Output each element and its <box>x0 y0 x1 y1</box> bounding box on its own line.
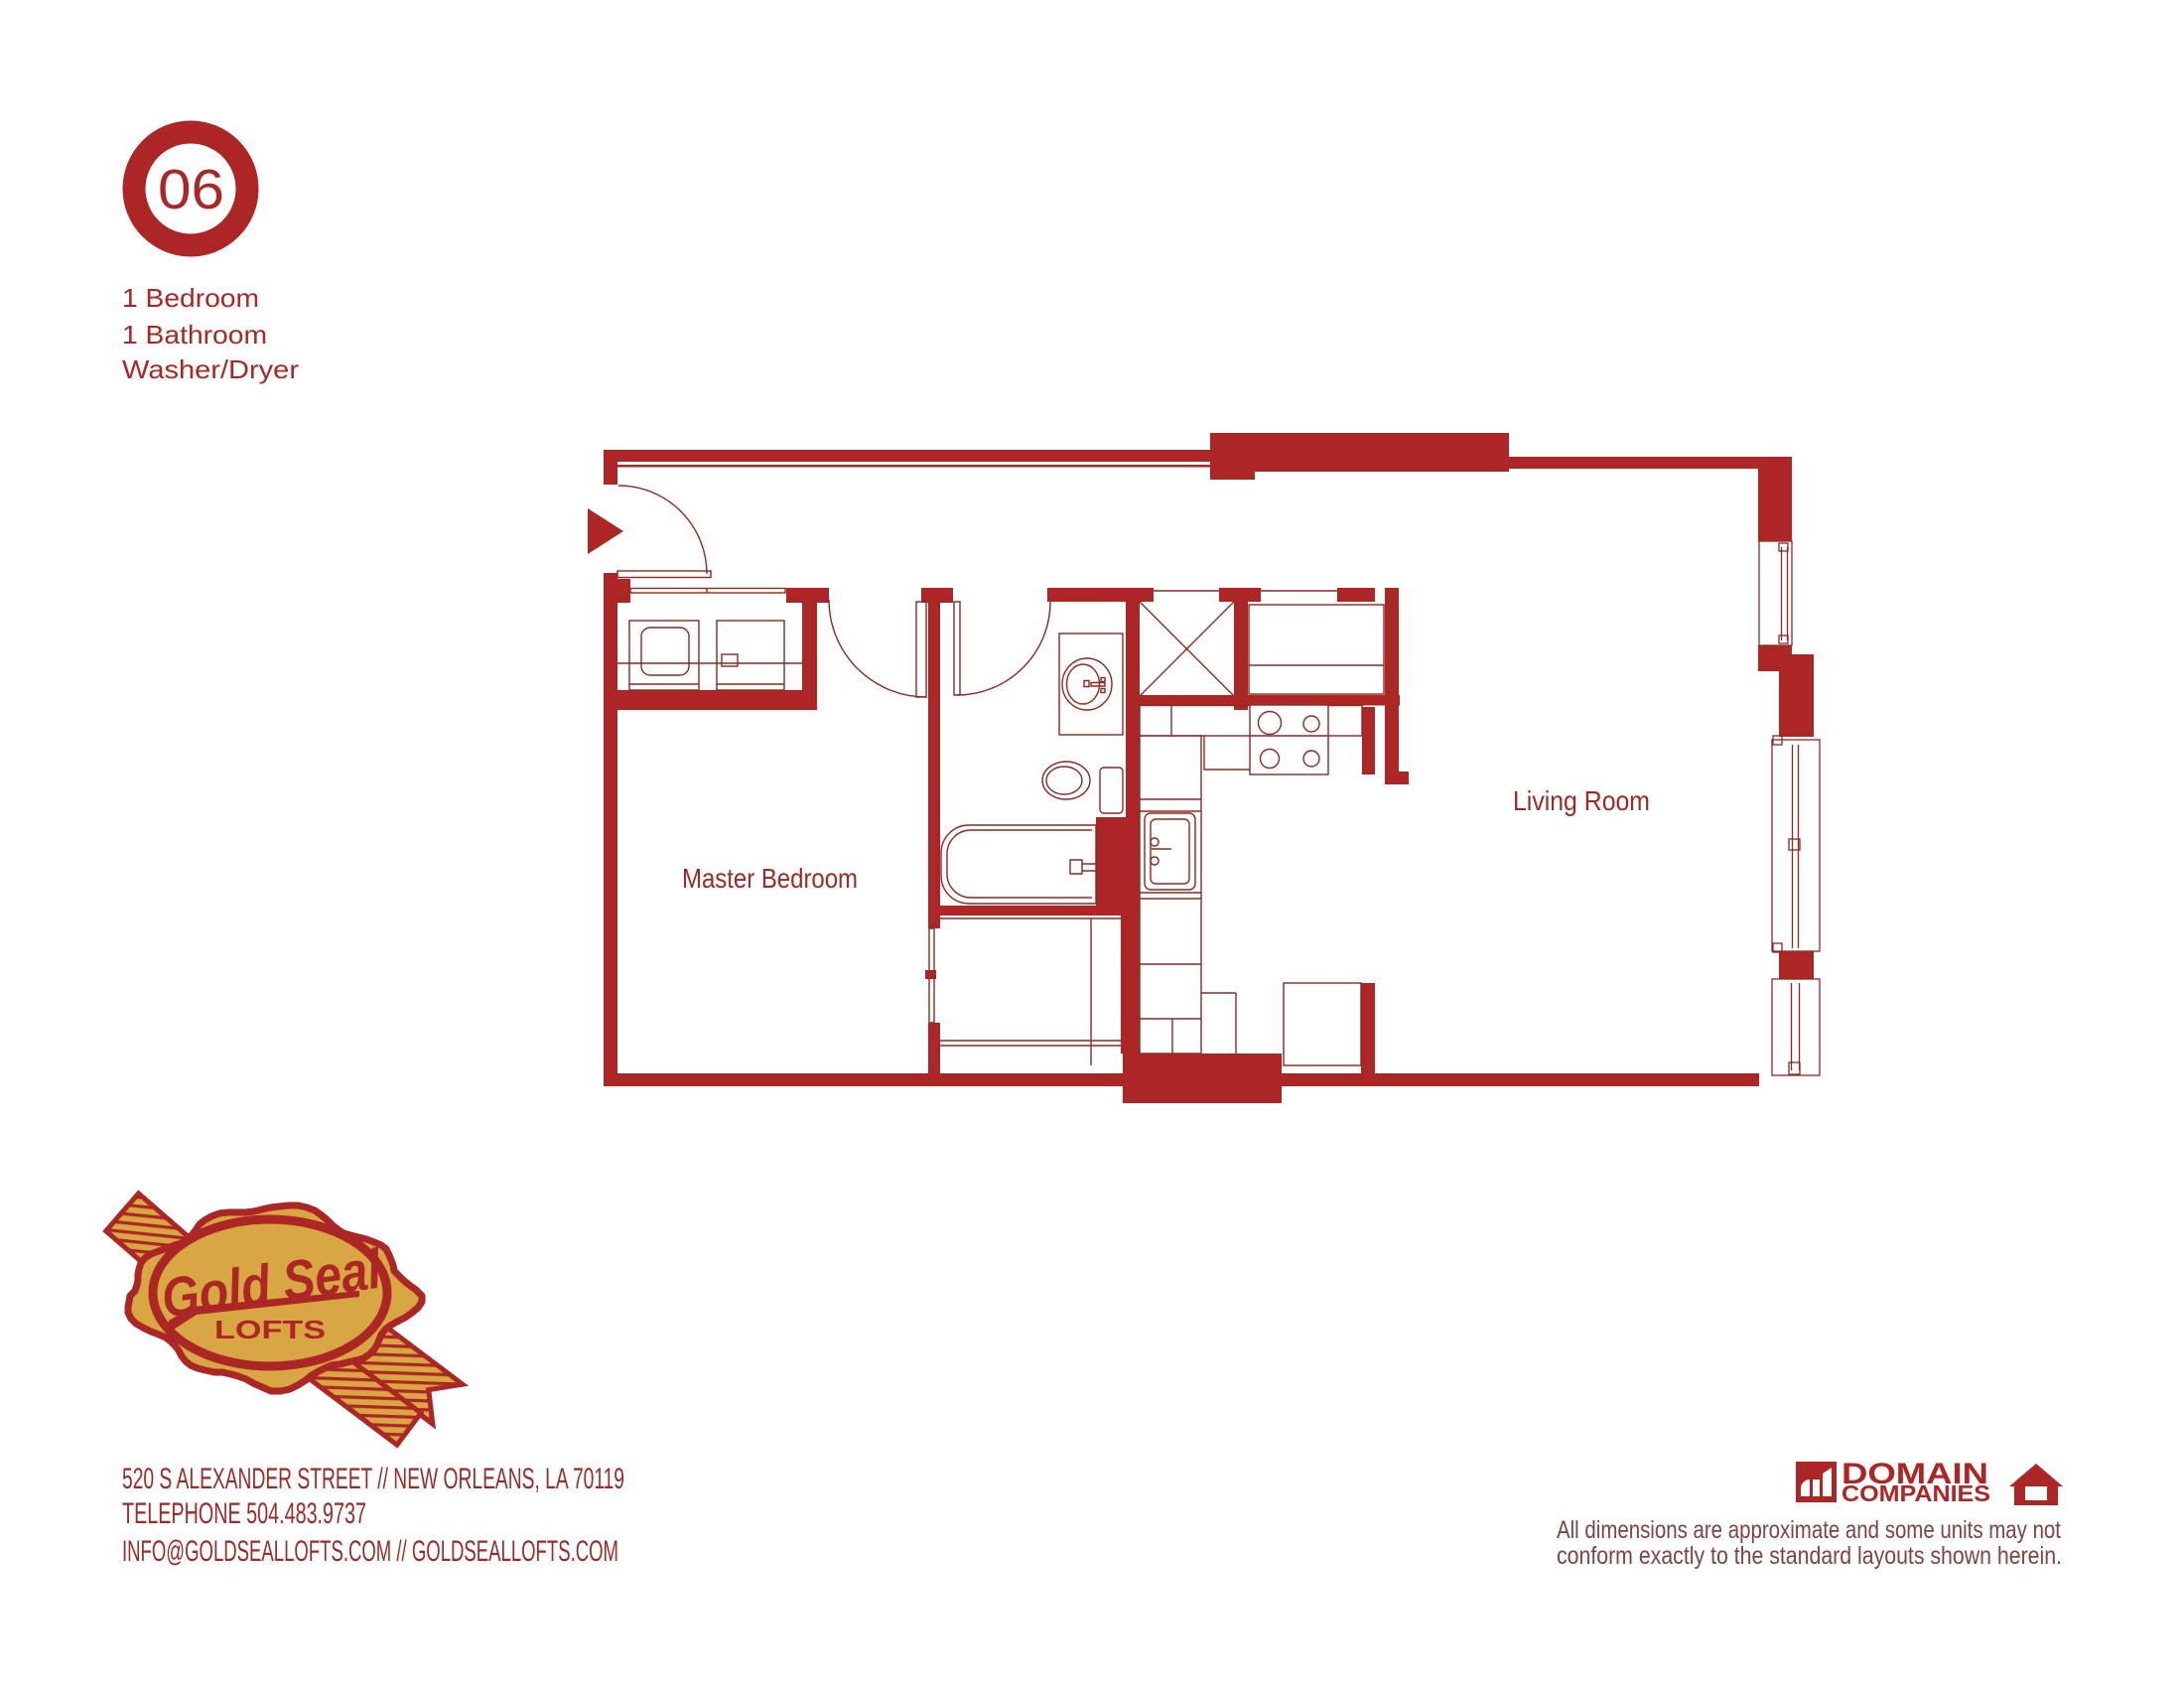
svg-text:All dimensions are approximate: All dimensions are approximate and some … <box>1557 1516 2061 1544</box>
svg-text:LOFTS: LOFTS <box>214 1315 326 1344</box>
svg-text:Master Bedroom: Master Bedroom <box>682 863 858 894</box>
svg-text:INFO@GOLDSEALLOFTS.COM // GOLD: INFO@GOLDSEALLOFTS.COM // GOLDSEALLOFTS.… <box>122 1535 618 1568</box>
svg-text:Washer/Dryer: Washer/Dryer <box>122 354 299 384</box>
svg-text:520 S ALEXANDER STREET // NEW: 520 S ALEXANDER STREET // NEW ORLEANS, L… <box>122 1463 624 1495</box>
svg-text:Living Room: Living Room <box>1513 785 1650 816</box>
svg-text:TELEPHONE 504.483.9737: TELEPHONE 504.483.9737 <box>122 1497 366 1530</box>
svg-text:COMPANIES: COMPANIES <box>1842 1480 1990 1506</box>
svg-text:1 Bathroom: 1 Bathroom <box>122 320 267 350</box>
svg-text:06: 06 <box>158 158 224 221</box>
svg-text:1 Bedroom: 1 Bedroom <box>122 283 259 313</box>
svg-text:conform exactly to the standar: conform exactly to the standard layouts … <box>1557 1542 2062 1570</box>
